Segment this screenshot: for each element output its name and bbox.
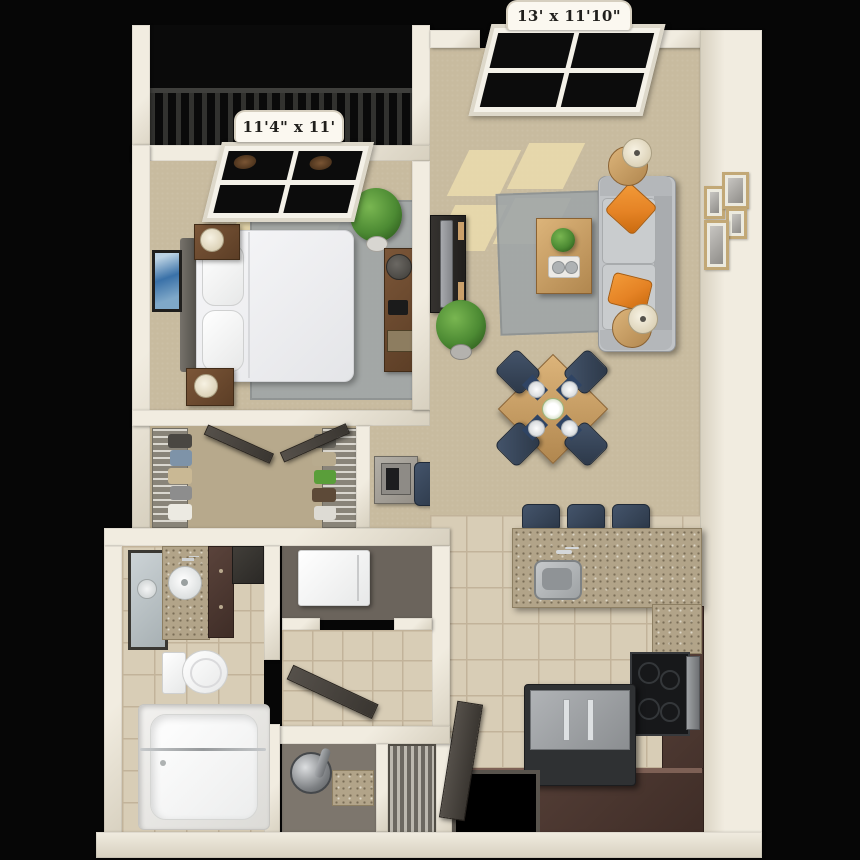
frame-art — [732, 214, 741, 233]
cooktop-range — [630, 652, 690, 736]
picture-frame — [704, 220, 729, 270]
nightstand-lamp — [194, 374, 218, 398]
bathroom-faucet — [182, 558, 194, 561]
living-plant-pot — [450, 344, 472, 360]
tv-stand-wood-trim — [458, 282, 464, 300]
oven-front — [686, 656, 700, 730]
dinner-plate — [528, 420, 545, 437]
laundry-right-wall — [432, 546, 450, 738]
picture-frame — [726, 208, 747, 239]
window-pane — [222, 151, 294, 180]
fridge-handle — [587, 699, 594, 741]
dinner-plate — [561, 420, 578, 437]
louvered-closet-panel — [388, 744, 436, 836]
bed-pillow — [202, 310, 244, 372]
dinner-plate — [528, 381, 545, 398]
left-wall-lower — [104, 546, 122, 838]
balcony-left-wall — [132, 25, 150, 161]
window-pane — [291, 151, 363, 180]
bottom-outer-wall — [96, 832, 762, 858]
bed-duvet-fold — [248, 232, 250, 378]
living-room-window — [469, 24, 666, 116]
coffee-table-plant — [551, 228, 575, 252]
vanity-cabinet — [208, 546, 234, 638]
laundry-front-wall-left — [282, 618, 320, 630]
window-pane — [283, 185, 355, 214]
flower-centerpiece — [542, 398, 564, 420]
living-room-dimensions-label: 13' x 11'10" — [506, 0, 632, 30]
bathtub-drain — [160, 760, 166, 766]
washer-dryer — [298, 550, 370, 606]
window-pane — [480, 73, 564, 108]
picture-frame — [722, 172, 749, 209]
hall-utility-divider-wall — [264, 726, 450, 744]
burner — [638, 698, 660, 720]
cup — [552, 261, 565, 274]
balcony-right-wall — [412, 25, 430, 161]
table-lamp — [628, 304, 658, 334]
laptop-screen — [386, 468, 399, 490]
laptop — [381, 463, 411, 495]
dresser-lamp — [386, 254, 412, 280]
shower-rod — [140, 748, 266, 751]
cabinet-knob — [219, 605, 223, 609]
bathroom-shelf — [232, 546, 264, 584]
window-pane — [490, 33, 574, 68]
bathtub-basin — [150, 714, 258, 820]
sink-drain — [181, 579, 188, 586]
toilet-seat — [190, 658, 222, 688]
living-room-dimensions-text: 13' x 11'10" — [517, 7, 621, 25]
wall-art-print — [155, 253, 179, 309]
window-pane — [560, 73, 644, 108]
bedroom-living-divider-wall — [412, 161, 430, 410]
cabinet-knob — [219, 569, 223, 573]
tv-stand-wood-trim — [458, 222, 464, 240]
dresser-item — [388, 300, 408, 315]
dresser-tray — [387, 330, 413, 352]
laundry-front-wall-right — [394, 618, 432, 630]
lamp-finial — [640, 316, 646, 322]
sink-basin — [542, 568, 572, 590]
nightstand-lamp — [200, 228, 224, 252]
bathroom-right-wall-upper — [264, 546, 280, 660]
bedroom-dimensions-label: 11'4" x 11' — [234, 110, 344, 142]
burner — [660, 670, 680, 690]
hanging-clothes-left — [168, 432, 194, 524]
window-pane — [570, 33, 654, 68]
burner — [638, 662, 660, 684]
bedroom-dimensions-text: 11'4" x 11' — [243, 118, 336, 136]
mid-walls-row — [104, 528, 450, 546]
television — [440, 220, 453, 308]
kitchen-sink — [534, 560, 582, 600]
kitchen-counter-corner — [652, 604, 702, 654]
living-top-wall-left — [430, 30, 480, 48]
utility-divider-wall — [376, 744, 388, 832]
bedroom-closet-divider-wall — [132, 410, 430, 426]
frame-art — [728, 178, 743, 203]
lamp-finial — [634, 150, 640, 156]
bedroom-window — [202, 142, 374, 222]
mirror-reflection — [137, 579, 157, 599]
floorplan-3d-render: 11'4" x 11' — [0, 0, 860, 860]
utility-equipment-pad — [332, 770, 374, 806]
washer-lid-line — [357, 555, 359, 601]
frame-art — [710, 192, 719, 213]
toilet-bowl — [182, 650, 228, 694]
window-pane — [213, 185, 285, 214]
balcony-chair-hint — [232, 155, 257, 169]
cup — [565, 261, 578, 274]
frame-art — [710, 226, 723, 264]
burner — [660, 702, 680, 722]
kitchen-faucet — [556, 550, 572, 554]
refrigerator-top — [530, 690, 630, 750]
table-lamp — [622, 138, 652, 168]
coffee-table-tray — [548, 256, 580, 278]
right-outer-wall — [700, 30, 762, 838]
closet-nook-divider-wall — [356, 426, 370, 528]
balcony-chair-hint — [307, 156, 332, 170]
dinner-plate — [561, 381, 578, 398]
left-wall-upper — [132, 145, 150, 528]
wall-art — [152, 250, 182, 312]
fridge-handle — [563, 699, 570, 741]
